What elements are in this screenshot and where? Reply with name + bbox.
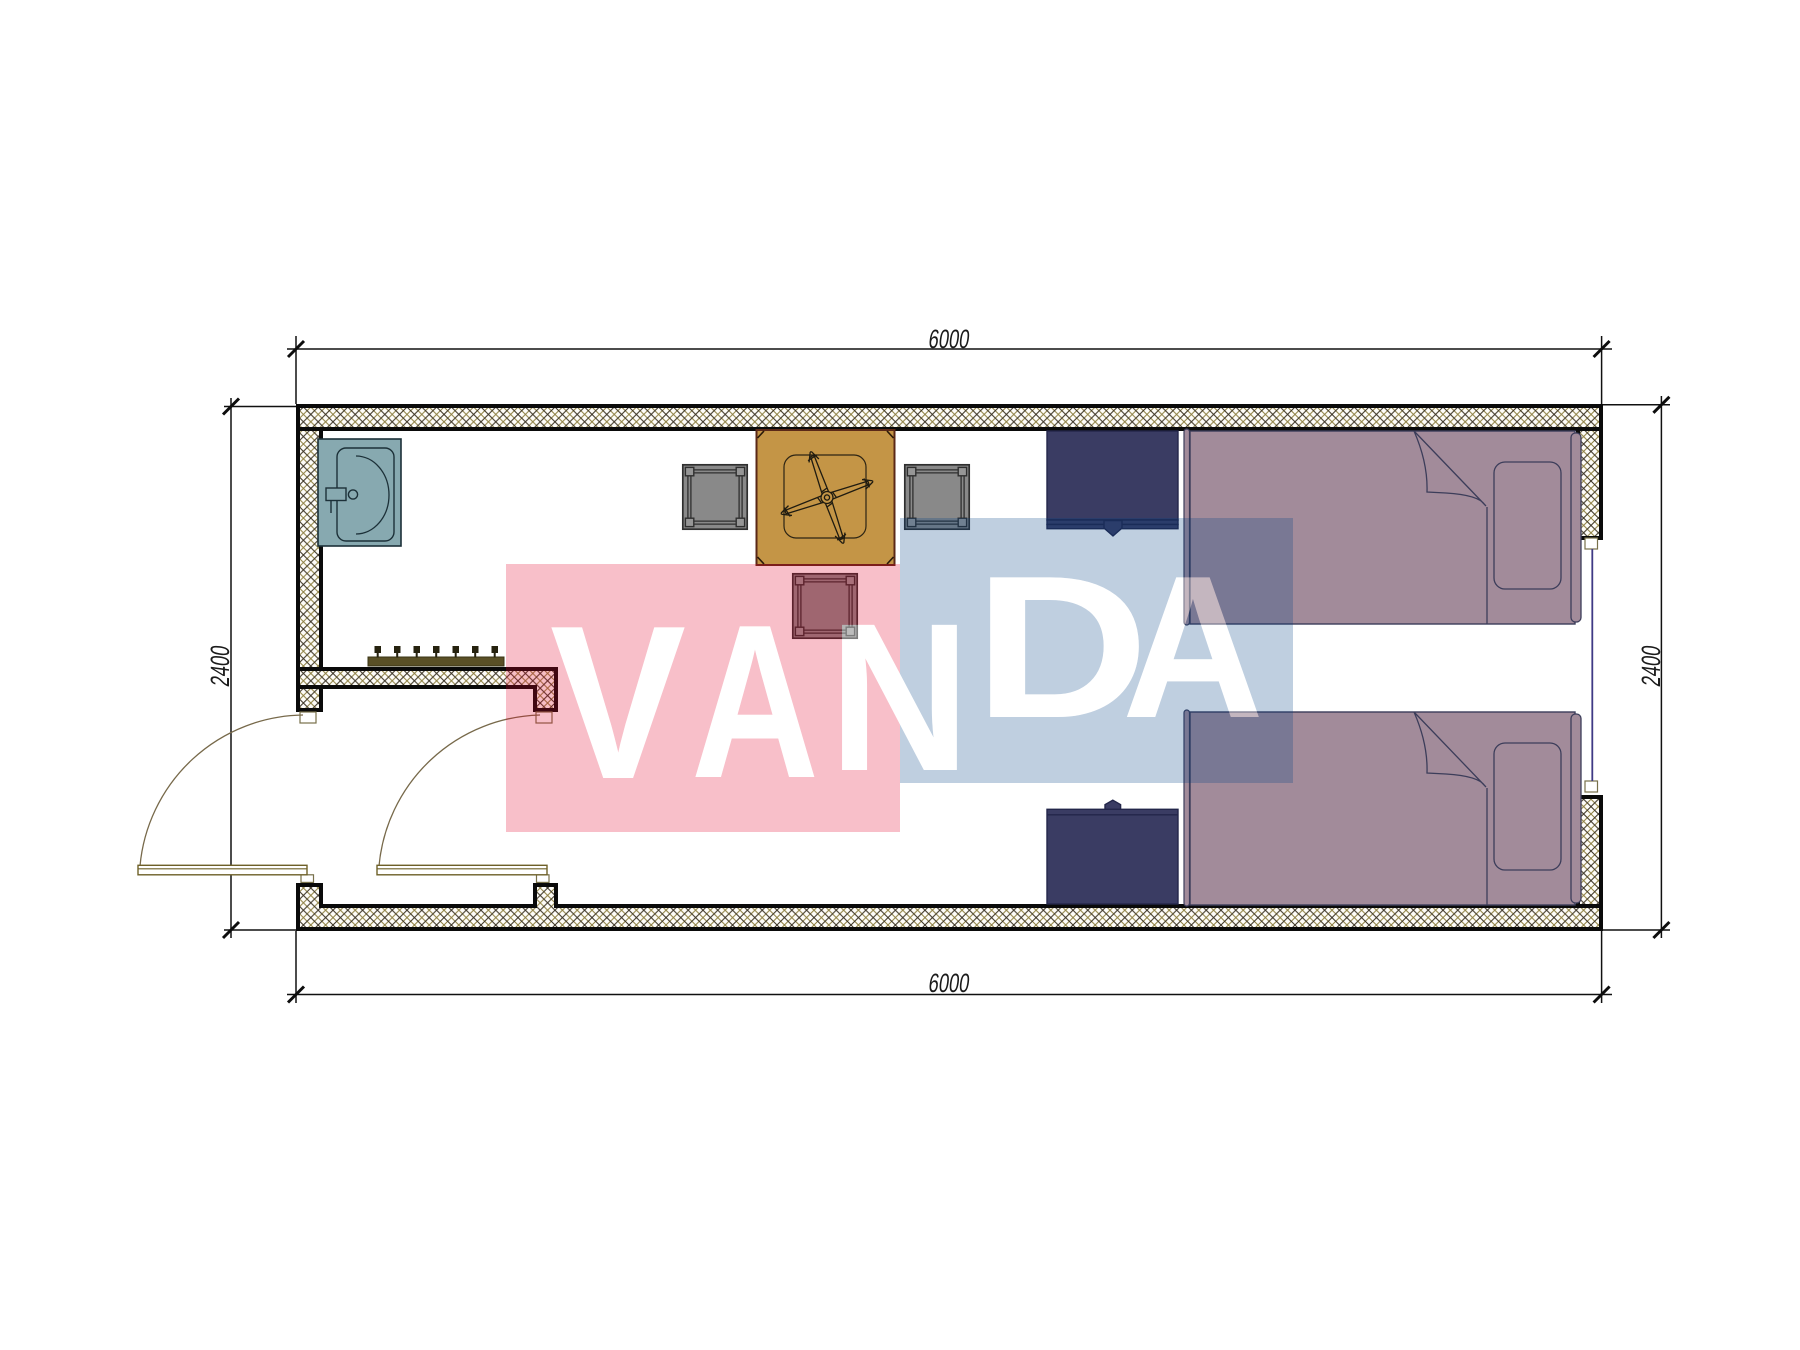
svg-text:2400: 2400: [1636, 643, 1666, 688]
svg-text:6000: 6000: [927, 324, 972, 354]
svg-text:2400: 2400: [205, 643, 235, 688]
svg-text:6000: 6000: [927, 968, 972, 998]
